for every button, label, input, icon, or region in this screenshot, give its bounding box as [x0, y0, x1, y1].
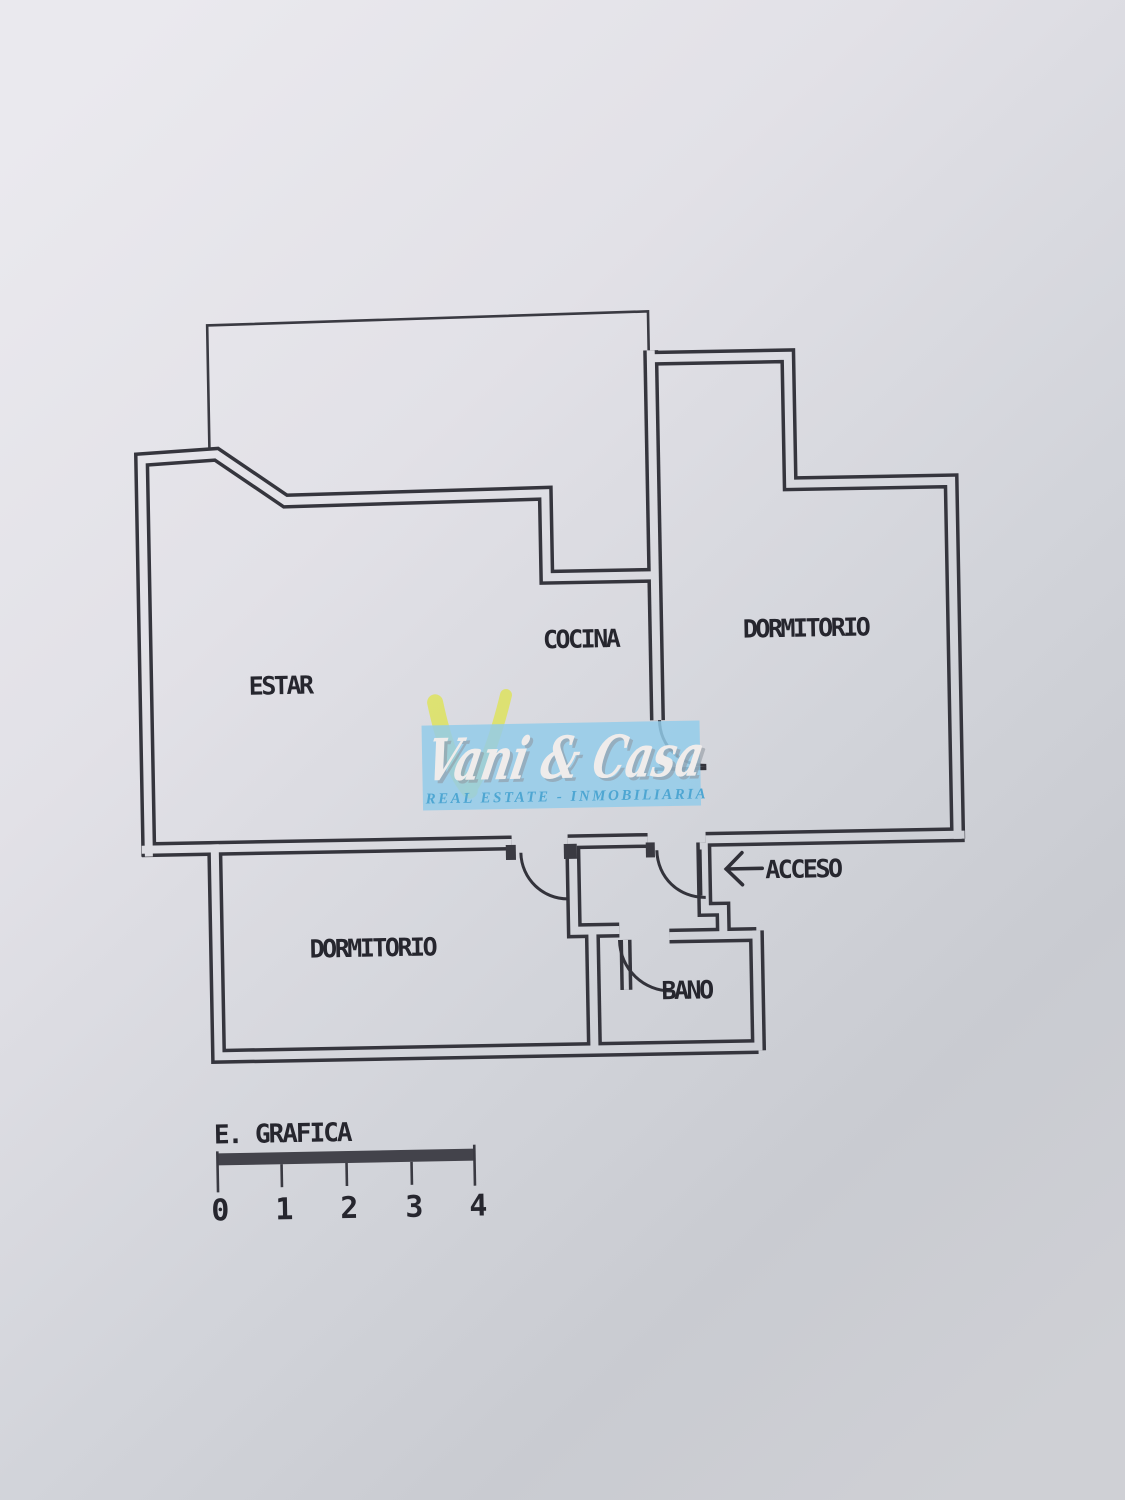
- room-label-bano: BANO: [661, 975, 713, 1005]
- scale-num-2: 2: [340, 1191, 357, 1226]
- scale-title: E. GRAFICA: [214, 1118, 353, 1151]
- scale-num-4: 4: [469, 1188, 487, 1223]
- room-label-estar: ESTAR: [249, 671, 316, 701]
- floor-plan-photo: ESTAR COCINA DORMITORIO DORMITORIO BANO …: [0, 0, 1125, 1500]
- scale-num-3: 3: [405, 1190, 423, 1225]
- scale-num-0: 0: [211, 1193, 229, 1228]
- access-arrow-shaft: [726, 868, 762, 869]
- scale-tick-4: [474, 1145, 475, 1186]
- dorm2-door-jamb-right: [564, 844, 577, 859]
- entry-door-leaf: [700, 849, 701, 895]
- wall-core: [706, 835, 965, 840]
- scale-tick-0: [217, 1151, 218, 1192]
- wall-core: [592, 927, 594, 1051]
- room-label-cocina: COCINA: [543, 624, 621, 654]
- wall-core: [669, 934, 756, 936]
- dorm2-door-jamb-left: [506, 845, 516, 860]
- wall-core: [568, 840, 648, 841]
- entry-door-jamb-left: [646, 842, 655, 857]
- room-label-dormitorio-top: DORMITORIO: [743, 612, 870, 643]
- watermark-brand: Vani & Casa: [421, 721, 710, 795]
- wall-core: [756, 930, 758, 1050]
- room-label-dormitorio-bottom: DORMITORIO: [309, 932, 436, 963]
- access-label: ACCESO: [765, 854, 842, 884]
- scale-num-1: 1: [275, 1192, 293, 1227]
